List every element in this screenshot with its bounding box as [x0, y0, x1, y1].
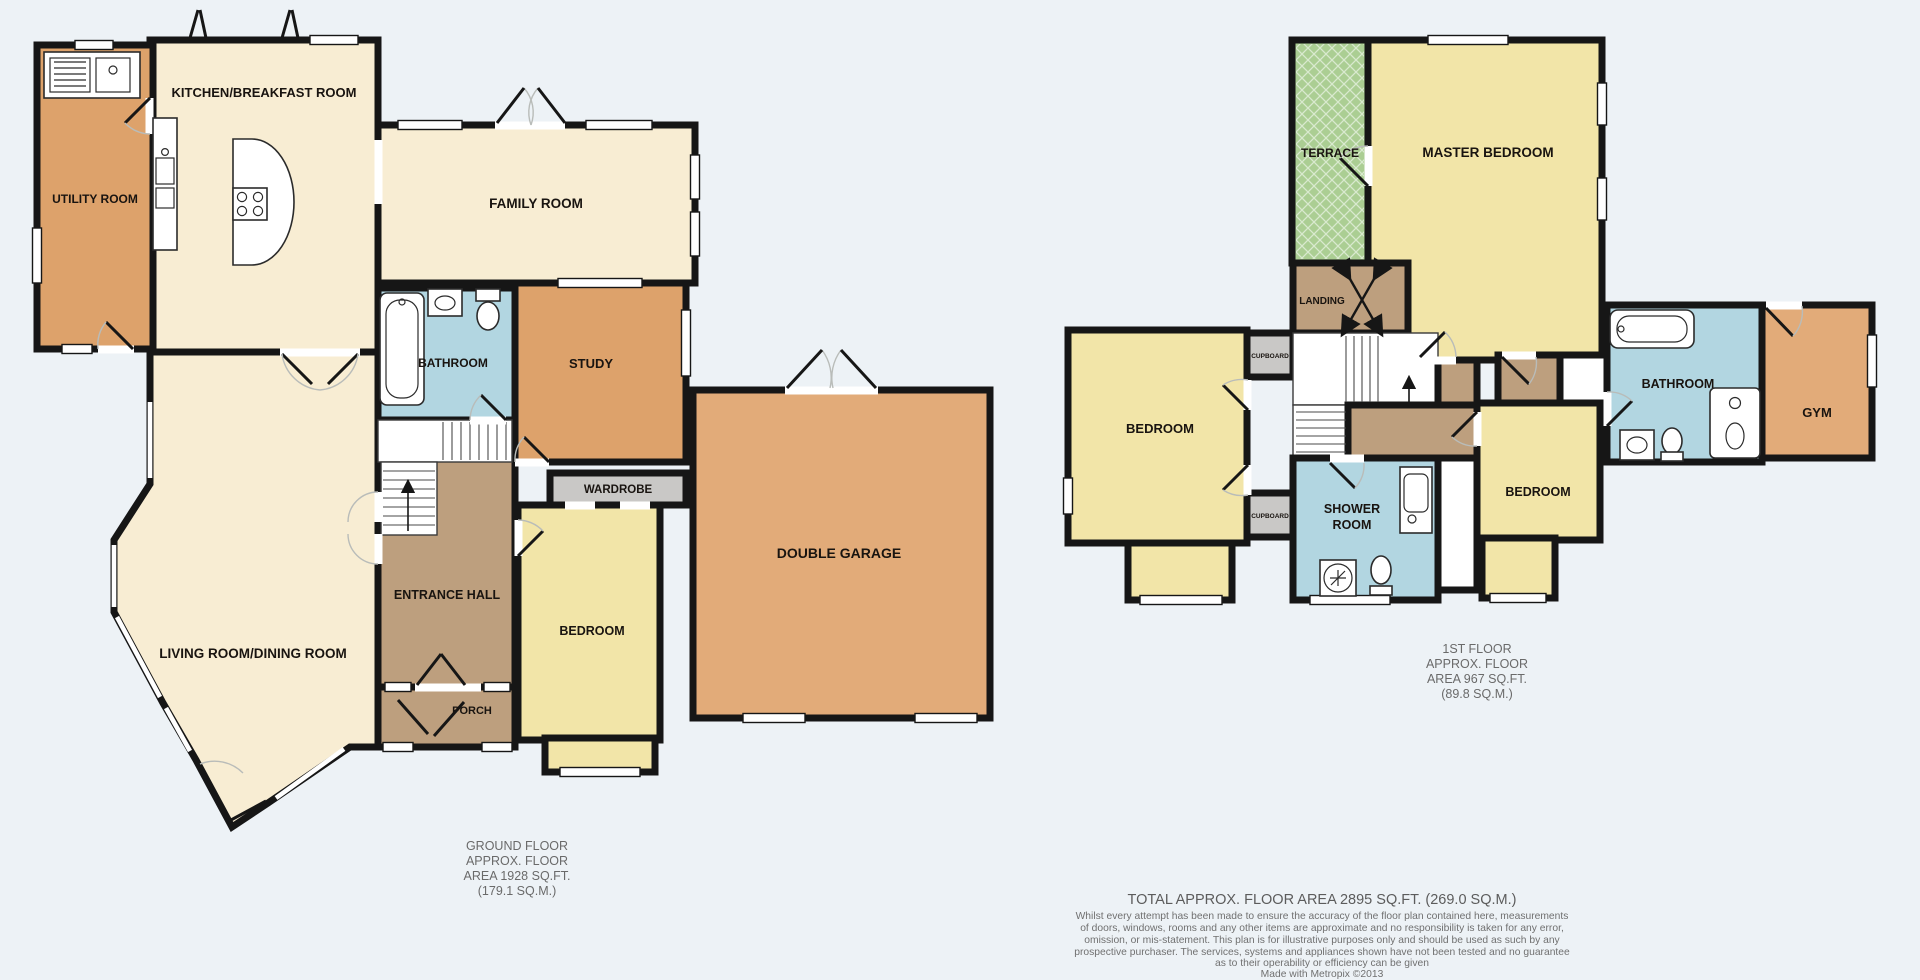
kitchen-counter-sink-icon — [153, 118, 177, 250]
bedroom-gf-label: BEDROOM — [559, 624, 624, 638]
ff-stairwell-lower — [1293, 405, 1348, 458]
gym-label: GYM — [1802, 405, 1832, 420]
bath-icon — [380, 293, 424, 405]
bedroom-middle-label: BEDROOM — [1505, 485, 1570, 499]
credit-text: Made with Metropix ©2013 — [1261, 969, 1384, 980]
floor-plan-canvas: UTILITY ROOM KITCHEN/BREAKFAST ROOM FAMI… — [0, 0, 1920, 980]
ff-caption-line3: AREA 967 SQ.FT. — [1427, 672, 1527, 686]
ff-caption-line2: APPROX. FLOOR — [1426, 657, 1528, 671]
bath-icon — [1610, 310, 1694, 348]
utility-sink-icon — [44, 52, 140, 98]
terrace-label: TERRACE — [1301, 146, 1359, 160]
room-bedroom-left-bay — [1128, 543, 1232, 600]
disclaimer-line2: of doors, windows, rooms and any other i… — [1080, 923, 1564, 934]
disclaimer-line5: as to their operability or efficiency ca… — [1215, 958, 1429, 969]
living-dining-label: LIVING ROOM/DINING ROOM — [159, 646, 347, 661]
landing-label: LANDING — [1299, 296, 1345, 307]
ground-floor-caption: GROUND FLOOR APPROX. FLOOR AREA 1928 SQ.… — [464, 839, 571, 898]
ground-floor-plan: UTILITY ROOM KITCHEN/BREAKFAST ROOM FAMI… — [33, 10, 991, 898]
chimney-mark-icon — [190, 10, 206, 38]
room-bedroom-gf — [518, 505, 660, 740]
bathroom-ff-label: BATHROOM — [1642, 377, 1715, 391]
shower-room-label-line2: ROOM — [1333, 518, 1372, 532]
room-study — [515, 283, 686, 462]
floor-plan-drawing: UTILITY ROOM KITCHEN/BREAKFAST ROOM FAMI… — [0, 0, 1920, 980]
cupboard-top-label: CUPBOARD — [1251, 353, 1289, 360]
room-gym — [1762, 305, 1872, 458]
bathroom-gf-label: BATHROOM — [418, 356, 488, 370]
cupboard-bottom-label: CUPBOARD — [1251, 513, 1289, 520]
shower-icon — [1710, 388, 1760, 458]
porch-label: PORCH — [452, 705, 492, 717]
footer: TOTAL APPROX. FLOOR AREA 2895 SQ.FT. (26… — [1074, 892, 1570, 980]
ff-hallway-strip-left — [1438, 458, 1477, 590]
toilet-icon — [476, 289, 500, 330]
gf-caption-line3: AREA 1928 SQ.FT. — [464, 869, 571, 883]
study-label: STUDY — [569, 356, 613, 371]
toilet-icon — [1661, 428, 1683, 461]
room-bedroom-middle — [1477, 403, 1600, 540]
toilet-icon — [1370, 556, 1392, 595]
sink-icon — [428, 289, 462, 316]
shower-icon — [1320, 560, 1356, 596]
disclaimer-line1: Whilst every attempt has been made to en… — [1076, 911, 1569, 922]
disclaimer-line3: omission, or mis-statement. This plan is… — [1084, 935, 1560, 946]
shower-room-label-line1: SHOWER — [1324, 502, 1380, 516]
gf-stairs-upper-run — [378, 420, 512, 462]
kitchen-label: KITCHEN/BREAKFAST ROOM — [172, 85, 357, 100]
sink-icon — [1620, 430, 1654, 460]
entrance-hall-label: ENTRANCE HALL — [394, 588, 501, 602]
chimney-mark-icon — [282, 10, 298, 38]
gf-caption-line4: (179.1 SQ.M.) — [478, 884, 557, 898]
ff-caption-line4: (89.8 SQ.M.) — [1441, 687, 1513, 701]
hob-icon — [233, 188, 267, 220]
bedroom-left-label: BEDROOM — [1126, 421, 1194, 436]
room-bedroom-middle-bay — [1482, 538, 1555, 598]
room-porch — [378, 687, 515, 747]
double-garage-label: DOUBLE GARAGE — [777, 545, 901, 561]
first-floor-caption: 1ST FLOOR APPROX. FLOOR AREA 967 SQ.FT. … — [1426, 642, 1528, 701]
ff-stairwell — [1293, 333, 1438, 405]
disclaimer-line4: prospective purchaser. The services, sys… — [1074, 947, 1570, 958]
sink-icon — [1400, 467, 1432, 533]
master-bedroom-label: MASTER BEDROOM — [1422, 145, 1553, 160]
ff-caption-line1: 1ST FLOOR — [1442, 642, 1511, 656]
ff-corridor-upper — [1438, 360, 1477, 405]
gf-caption-line2: APPROX. FLOOR — [466, 854, 568, 868]
room-bedroom-left — [1068, 330, 1247, 543]
utility-room-label: UTILITY ROOM — [52, 192, 138, 206]
total-area-text: TOTAL APPROX. FLOOR AREA 2895 SQ.FT. (26… — [1128, 892, 1517, 908]
gf-caption-line1: GROUND FLOOR — [466, 839, 568, 853]
first-floor-plan: TERRACE MASTER BEDROOM LANDING BEDROOM C… — [1064, 36, 1877, 702]
wardrobe-label: WARDROBE — [584, 484, 653, 496]
family-room-label: FAMILY ROOM — [489, 196, 583, 211]
